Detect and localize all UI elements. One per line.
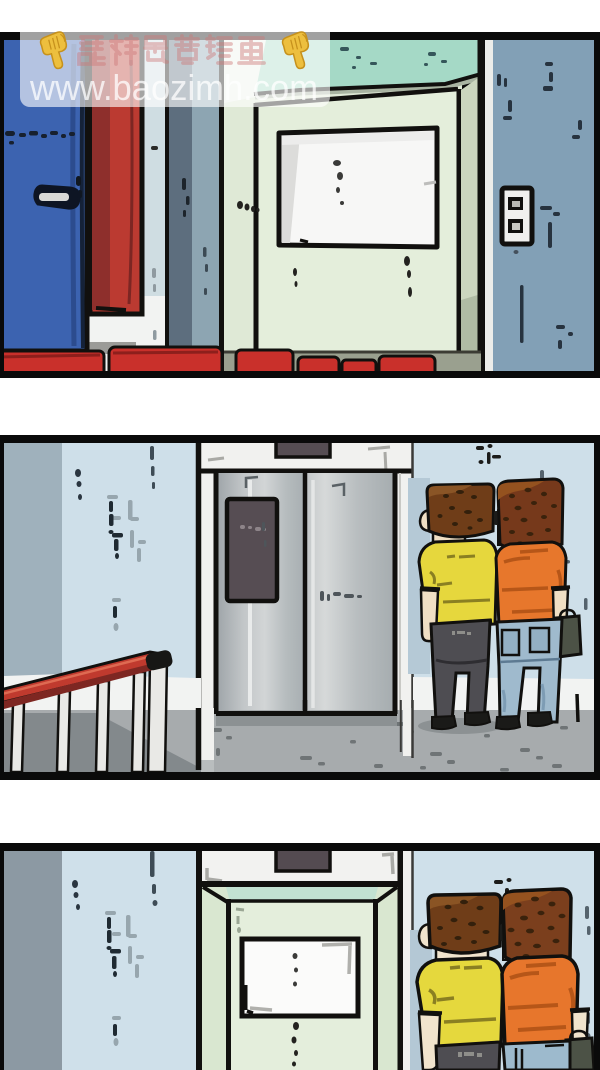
svg-text:www.baozimh.com: www.baozimh.com xyxy=(29,67,318,108)
